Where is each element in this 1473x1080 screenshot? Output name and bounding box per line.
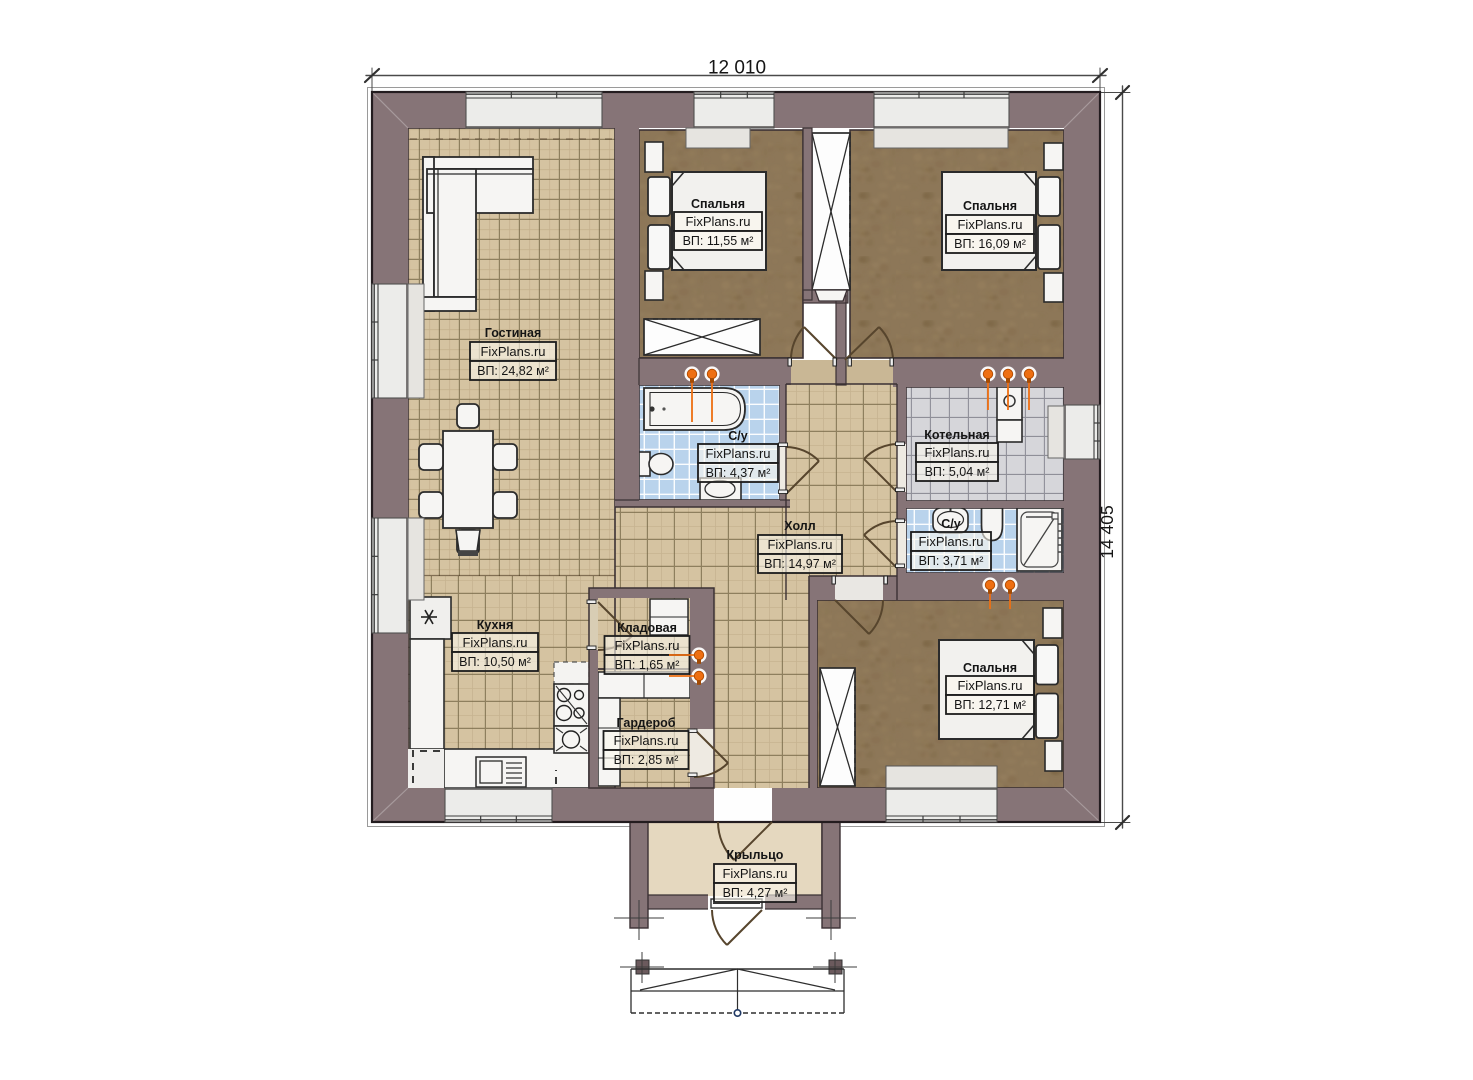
svg-text:ВП: 10,50 м²: ВП: 10,50 м²	[459, 655, 531, 669]
svg-text:Гардероб: Гардероб	[616, 716, 675, 730]
svg-text:Гостиная: Гостиная	[485, 326, 542, 340]
svg-text:ВП: 16,09 м²: ВП: 16,09 м²	[954, 237, 1026, 251]
svg-text:FixPlans.ru: FixPlans.ru	[613, 733, 678, 748]
svg-text:FixPlans.ru: FixPlans.ru	[918, 534, 983, 549]
svg-text:Крыльцо: Крыльцо	[727, 848, 784, 862]
svg-text:FixPlans.ru: FixPlans.ru	[957, 678, 1022, 693]
svg-text:FixPlans.ru: FixPlans.ru	[685, 214, 750, 229]
svg-text:Спальня: Спальня	[691, 197, 745, 211]
svg-text:FixPlans.ru: FixPlans.ru	[705, 446, 770, 461]
svg-text:ВП: 12,71 м²: ВП: 12,71 м²	[954, 698, 1026, 712]
svg-text:Кладовая: Кладовая	[617, 621, 677, 635]
svg-text:ВП: 11,55 м²: ВП: 11,55 м²	[683, 234, 754, 248]
svg-text:12 010: 12 010	[708, 58, 766, 79]
svg-text:ВП: 14,97 м²: ВП: 14,97 м²	[764, 557, 836, 571]
svg-text:Котельная: Котельная	[924, 428, 989, 442]
svg-text:ВП: 4,27 м²: ВП: 4,27 м²	[723, 886, 788, 900]
svg-text:Спальня: Спальня	[963, 199, 1017, 213]
svg-text:FixPlans.ru: FixPlans.ru	[480, 344, 545, 359]
svg-text:ВП: 4,37 м²: ВП: 4,37 м²	[706, 466, 771, 480]
svg-text:FixPlans.ru: FixPlans.ru	[614, 638, 679, 653]
svg-text:С/у: С/у	[728, 429, 748, 443]
svg-text:ВП: 1,65 м²: ВП: 1,65 м²	[615, 658, 680, 672]
svg-text:Кухня: Кухня	[477, 618, 514, 632]
svg-text:С/у: С/у	[941, 517, 961, 531]
svg-text:ВП: 24,82 м²: ВП: 24,82 м²	[477, 364, 549, 378]
svg-text:Спальня: Спальня	[963, 661, 1017, 675]
svg-text:Холл: Холл	[784, 519, 815, 533]
svg-text:ВП: 5,04 м²: ВП: 5,04 м²	[925, 465, 990, 479]
svg-text:ВП: 2,85 м²: ВП: 2,85 м²	[614, 753, 679, 767]
svg-text:FixPlans.ru: FixPlans.ru	[722, 866, 787, 881]
svg-text:FixPlans.ru: FixPlans.ru	[924, 445, 989, 460]
svg-text:ВП: 3,71 м²: ВП: 3,71 м²	[919, 554, 984, 568]
svg-text:FixPlans.ru: FixPlans.ru	[462, 635, 527, 650]
svg-text:FixPlans.ru: FixPlans.ru	[957, 217, 1022, 232]
svg-text:FixPlans.ru: FixPlans.ru	[767, 537, 832, 552]
